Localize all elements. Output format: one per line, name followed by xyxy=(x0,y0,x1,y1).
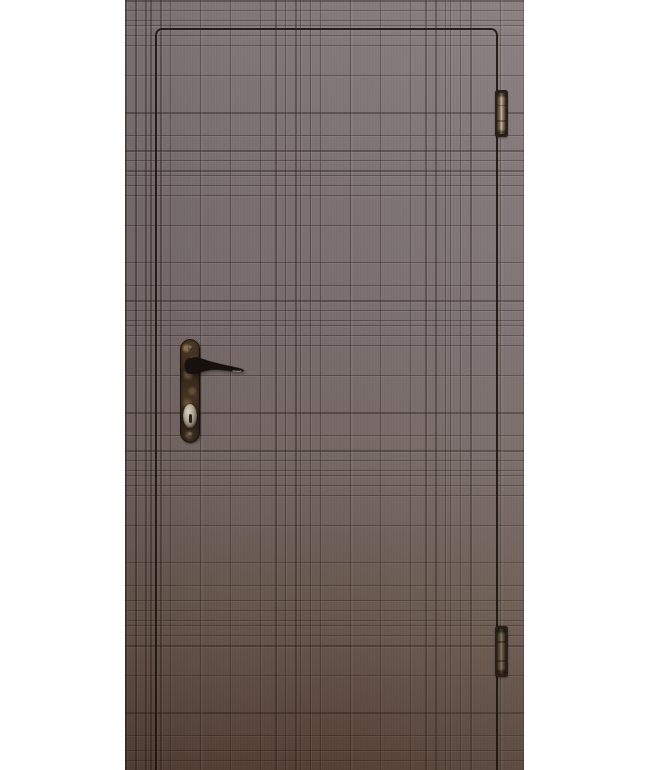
door-leaf xyxy=(125,0,524,770)
photo-background xyxy=(0,0,650,770)
hinge-bottom-barrel xyxy=(497,629,506,674)
hinge-top xyxy=(495,90,508,137)
hinge-top-barrel xyxy=(497,93,506,134)
screw-top xyxy=(188,345,193,350)
handle-lever xyxy=(182,354,247,381)
screw-bottom xyxy=(188,432,193,437)
keyhole-slot xyxy=(189,414,192,423)
lever-neck xyxy=(185,358,195,374)
hinge-bottom xyxy=(495,626,508,677)
panel-groove-outline xyxy=(155,28,498,770)
lock-cylinder xyxy=(183,404,197,428)
